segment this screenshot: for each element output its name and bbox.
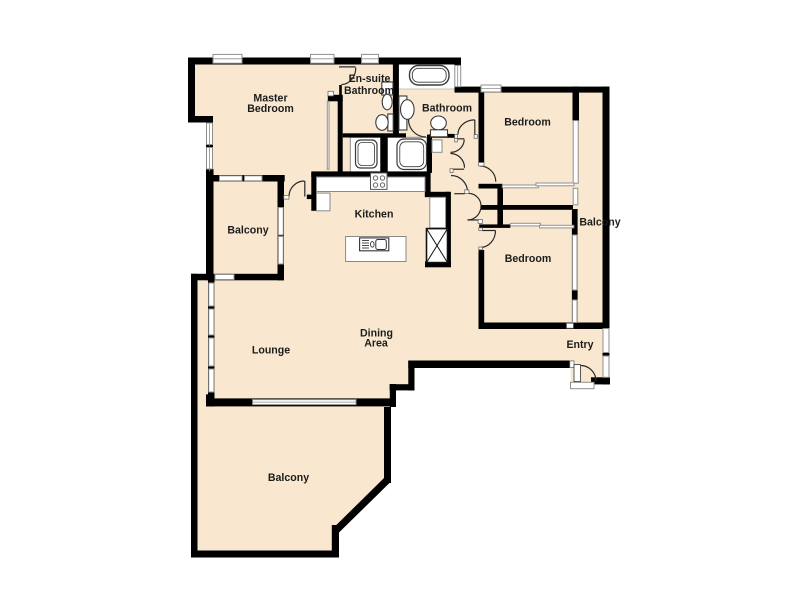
svg-text:Bedroom: Bedroom [247, 103, 294, 115]
svg-text:Lounge: Lounge [252, 345, 290, 357]
svg-text:Bathroom: Bathroom [422, 103, 472, 115]
svg-text:Kitchen: Kitchen [355, 209, 394, 221]
svg-text:Balcony: Balcony [227, 224, 268, 236]
svg-text:Balcony: Balcony [268, 472, 309, 484]
svg-text:Bathroom: Bathroom [344, 85, 394, 97]
svg-text:Balcony: Balcony [579, 216, 620, 228]
svg-text:Entry: Entry [566, 339, 593, 351]
svg-text:En-suite: En-suite [349, 73, 391, 85]
svg-text:Area: Area [364, 338, 388, 350]
svg-text:Bedroom: Bedroom [504, 117, 551, 129]
svg-text:Bedroom: Bedroom [505, 253, 552, 265]
